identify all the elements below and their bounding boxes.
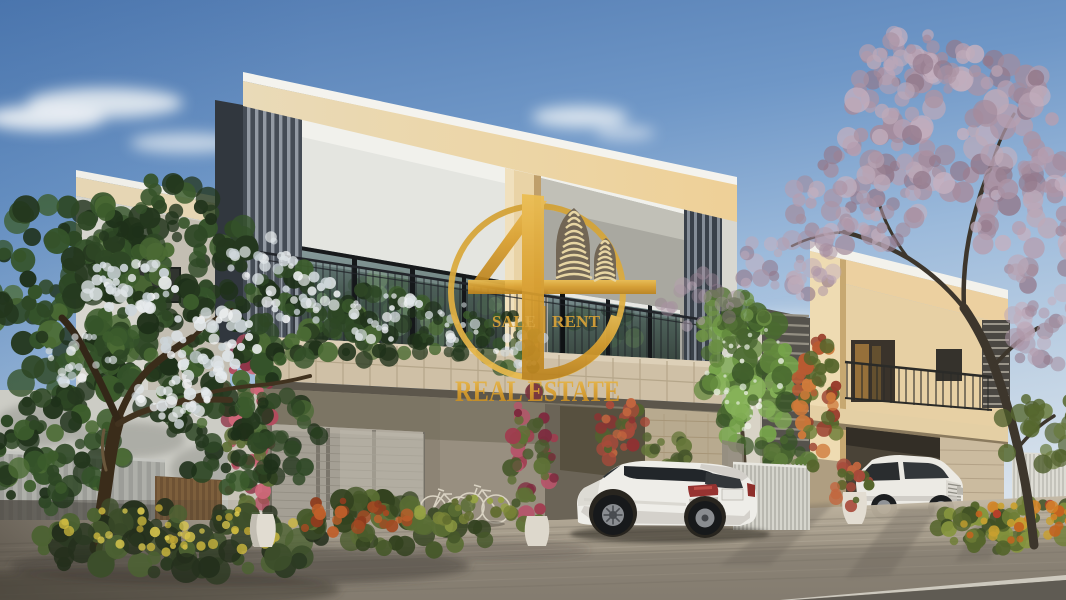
svg-text:RENT: RENT: [552, 312, 601, 331]
svg-text:REAL ESTATE: REAL ESTATE: [455, 375, 620, 408]
svg-text:SALE: SALE: [492, 312, 536, 331]
